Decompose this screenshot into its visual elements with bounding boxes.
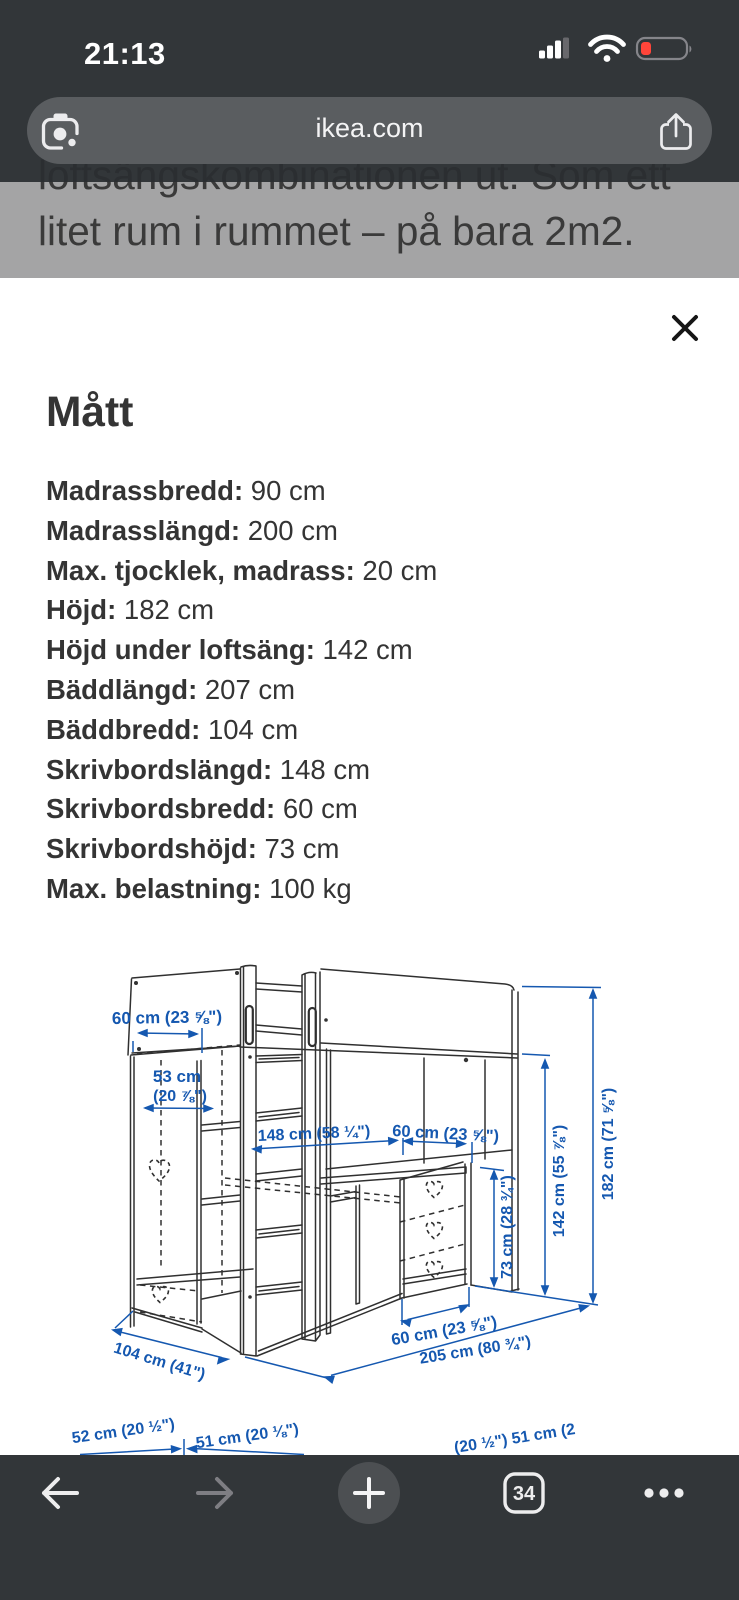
svg-text:34: 34 [513, 1483, 536, 1505]
svg-text:142 cm (55 ⅞"): 142 cm (55 ⅞") [551, 1125, 568, 1238]
svg-text:52 cm (20 ½"): 52 cm (20 ½") [71, 1416, 176, 1447]
svg-text:104 cm (41"): 104 cm (41") [112, 1340, 208, 1384]
svg-text:51 cm (20 ⅛"): 51 cm (20 ⅛") [195, 1421, 300, 1452]
svg-text:182 cm (71 ⅝"): 182 cm (71 ⅝") [600, 1088, 617, 1201]
svg-text:148 cm (58 ¼"): 148 cm (58 ¼") [257, 1123, 370, 1145]
svg-text:53 cm: 53 cm [153, 1067, 201, 1086]
svg-text:73 cm (28 ¾"): 73 cm (28 ¾") [499, 1175, 516, 1279]
svg-text:60 cm (23 ⅝"): 60 cm (23 ⅝") [112, 1007, 222, 1028]
svg-text:(20 ½") 51 cm (2: (20 ½") 51 cm (2 [453, 1421, 577, 1455]
svg-text:(20 ⅞"): (20 ⅞") [153, 1088, 207, 1105]
